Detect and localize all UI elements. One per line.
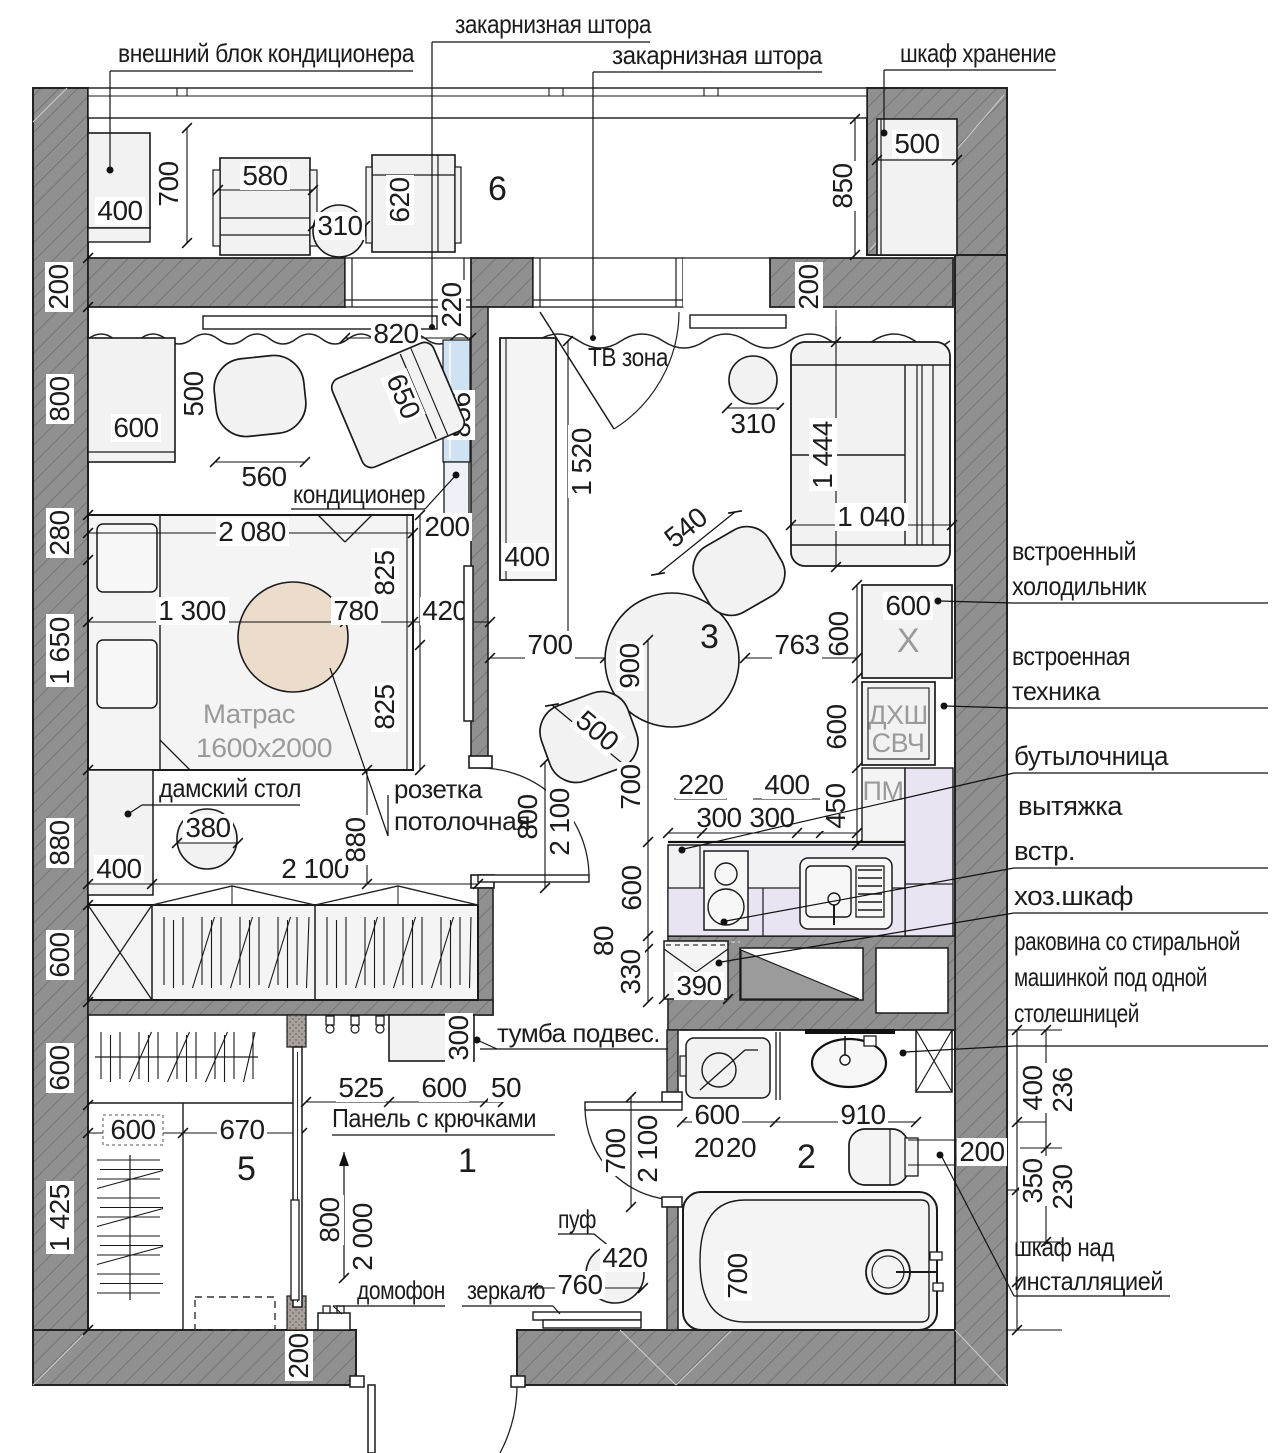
svg-text:400: 400 <box>97 195 142 226</box>
svg-text:390: 390 <box>676 970 721 1001</box>
svg-text:310: 310 <box>317 210 362 241</box>
svg-text:700: 700 <box>527 629 572 660</box>
svg-text:780: 780 <box>333 595 378 626</box>
svg-text:столешницей: столешницей <box>1014 998 1139 1028</box>
svg-text:200: 200 <box>283 1333 314 1378</box>
svg-text:2 100: 2 100 <box>632 1115 663 1183</box>
svg-text:пуф: пуф <box>558 1204 596 1234</box>
svg-text:400: 400 <box>1017 1065 1048 1110</box>
svg-text:620: 620 <box>384 177 415 222</box>
svg-text:20: 20 <box>694 1132 724 1163</box>
svg-text:техника: техника <box>1012 676 1101 706</box>
svg-text:600: 600 <box>44 1045 75 1090</box>
svg-text:внешний блок кондиционера: внешний блок кондиционера <box>118 38 415 68</box>
svg-text:236: 236 <box>1047 1067 1078 1112</box>
svg-text:400: 400 <box>96 853 141 884</box>
svg-text:X: X <box>897 622 919 660</box>
svg-text:6: 6 <box>488 170 506 208</box>
svg-text:1 040: 1 040 <box>837 501 905 532</box>
svg-text:760: 760 <box>557 1269 602 1300</box>
svg-text:600: 600 <box>823 611 854 656</box>
svg-text:кондиционер: кондиционер <box>293 479 425 509</box>
svg-text:525: 525 <box>338 1072 383 1103</box>
svg-text:820: 820 <box>373 318 418 349</box>
svg-text:3: 3 <box>700 618 718 656</box>
svg-text:400: 400 <box>764 769 809 800</box>
svg-text:1 650: 1 650 <box>44 617 75 685</box>
svg-text:Панель с крючками: Панель с крючками <box>332 1103 536 1133</box>
svg-text:850: 850 <box>827 163 858 208</box>
svg-text:600: 600 <box>694 1099 739 1130</box>
svg-text:220: 220 <box>436 282 467 327</box>
svg-text:350: 350 <box>1017 1158 1048 1203</box>
svg-text:1600x2000: 1600x2000 <box>196 733 332 763</box>
svg-text:580: 580 <box>242 160 287 191</box>
svg-text:670: 670 <box>219 1114 264 1145</box>
svg-text:1 300: 1 300 <box>158 595 226 626</box>
svg-text:200: 200 <box>43 264 74 309</box>
svg-text:880: 880 <box>340 817 371 862</box>
svg-text:зеркало: зеркало <box>467 1275 545 1305</box>
svg-text:230: 230 <box>1047 1164 1078 1209</box>
svg-text:50: 50 <box>491 1072 521 1103</box>
svg-text:бутылочница: бутылочница <box>1014 741 1169 771</box>
svg-text:220: 220 <box>678 769 723 800</box>
svg-text:ТВ зона: ТВ зона <box>588 342 669 372</box>
svg-text:763: 763 <box>774 629 819 660</box>
svg-text:холодильник: холодильник <box>1012 571 1147 601</box>
svg-text:500: 500 <box>894 128 939 159</box>
svg-text:400: 400 <box>504 541 549 572</box>
svg-text:700: 700 <box>615 764 646 809</box>
svg-text:ДХШ: ДХШ <box>868 700 928 730</box>
svg-text:420: 420 <box>422 595 467 626</box>
svg-text:330: 330 <box>615 949 646 994</box>
svg-text:280: 280 <box>44 510 75 555</box>
svg-text:шкаф хранение: шкаф хранение <box>900 38 1056 68</box>
svg-text:825: 825 <box>369 550 400 595</box>
svg-text:закарнизная штора: закарнизная штора <box>612 40 823 70</box>
svg-text:560: 560 <box>241 461 286 492</box>
svg-text:раковина со стиральной: раковина со стиральной <box>1014 926 1240 956</box>
svg-text:380: 380 <box>185 812 230 843</box>
svg-text:200: 200 <box>424 511 469 542</box>
svg-text:600: 600 <box>421 1072 466 1103</box>
svg-text:инсталляцией: инсталляцией <box>1014 1266 1163 1296</box>
svg-text:800: 800 <box>314 1197 345 1242</box>
svg-text:2 100: 2 100 <box>281 853 349 884</box>
svg-text:2 100: 2 100 <box>544 788 575 856</box>
svg-text:1: 1 <box>458 1142 476 1180</box>
svg-text:300: 300 <box>696 802 741 833</box>
svg-text:900: 900 <box>614 643 645 688</box>
svg-text:хоз.шкаф: хоз.шкаф <box>1014 881 1133 911</box>
svg-text:СВЧ: СВЧ <box>872 728 925 758</box>
svg-text:потолочная: потолочная <box>394 806 530 836</box>
svg-text:2 080: 2 080 <box>218 516 286 547</box>
svg-text:200: 200 <box>793 264 824 309</box>
svg-text:800: 800 <box>44 376 75 421</box>
svg-text:встроенная: встроенная <box>1012 641 1130 671</box>
svg-text:700: 700 <box>153 161 184 206</box>
svg-text:встр.: встр. <box>1014 836 1075 866</box>
svg-text:1 444: 1 444 <box>807 421 838 489</box>
svg-text:вытяжка: вытяжка <box>1018 791 1123 821</box>
svg-text:880: 880 <box>44 820 75 865</box>
svg-text:1 425: 1 425 <box>44 1184 75 1252</box>
svg-text:5: 5 <box>237 1150 255 1188</box>
svg-text:2 000: 2 000 <box>347 1203 378 1271</box>
svg-text:700: 700 <box>722 1253 753 1298</box>
svg-text:200: 200 <box>959 1136 1004 1167</box>
svg-text:2: 2 <box>797 1138 815 1176</box>
svg-text:домофон: домофон <box>357 1275 445 1305</box>
svg-text:1 520: 1 520 <box>566 428 597 496</box>
svg-text:600: 600 <box>821 704 852 749</box>
svg-text:600: 600 <box>885 590 930 621</box>
svg-text:310: 310 <box>730 408 775 439</box>
svg-text:20: 20 <box>726 1132 756 1163</box>
svg-text:тумба подвес.: тумба подвес. <box>497 1018 660 1048</box>
svg-text:700: 700 <box>600 1128 631 1173</box>
svg-text:420: 420 <box>602 1242 647 1273</box>
svg-text:500: 500 <box>178 371 209 416</box>
svg-text:Матрас: Матрас <box>203 699 295 729</box>
svg-text:600: 600 <box>113 412 158 443</box>
svg-text:600: 600 <box>616 865 647 910</box>
svg-text:450: 450 <box>820 783 851 828</box>
svg-text:300: 300 <box>443 1015 474 1060</box>
svg-text:910: 910 <box>840 1099 885 1130</box>
svg-text:ПМ: ПМ <box>863 776 904 806</box>
svg-text:встроенный: встроенный <box>1012 536 1136 566</box>
svg-text:розетка: розетка <box>394 774 483 804</box>
svg-text:825: 825 <box>369 684 400 729</box>
svg-text:закарнизная штора: закарнизная штора <box>455 9 652 39</box>
svg-text:600: 600 <box>110 1114 155 1145</box>
svg-text:машинкой под одной: машинкой под одной <box>1014 962 1207 992</box>
svg-text:600: 600 <box>44 932 75 977</box>
svg-text:дамский стол: дамский стол <box>159 773 301 803</box>
svg-text:шкаф над: шкаф над <box>1014 1232 1114 1262</box>
